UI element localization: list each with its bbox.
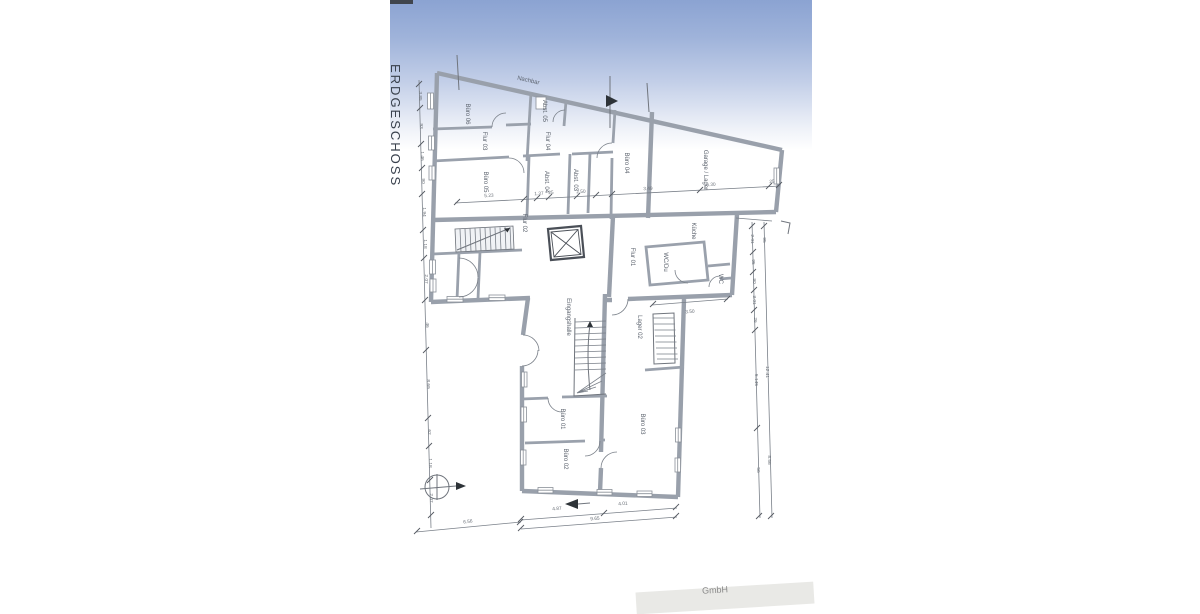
room-label-flur-02: Flur 02 [521, 214, 527, 233]
dim-label: 46 [424, 322, 430, 328]
dim-label: 2.01 [749, 234, 755, 244]
dim-label: 90 [420, 178, 426, 184]
room-label-buero-05: Büro 05 [482, 171, 488, 193]
staircase-straight [455, 226, 514, 252]
dim-label: 8.69 [425, 379, 431, 389]
room-label-abst-05: Abst. 05 [541, 100, 547, 123]
room-label-buero-06: Büro 06 [464, 103, 470, 125]
room-label-eingangshalle: Eingangshalle [565, 298, 571, 336]
room-label-kueche: Küche [690, 222, 696, 240]
dim-label: 56 [755, 467, 761, 473]
dim-label: 3.85 [417, 91, 423, 101]
dim-label: 95 [750, 259, 756, 265]
dim-label: 25 [548, 190, 554, 196]
dim-label: 9.65 [590, 516, 600, 523]
room-label-buero-03: Büro 03 [639, 413, 645, 435]
dim-label: 1.37 [534, 191, 544, 197]
dim-label: 25 [769, 179, 775, 185]
dim-label: 6.30 [706, 182, 716, 188]
room-label-flur-04: Flur 04 [544, 132, 550, 151]
dim-label: 2.07 [423, 274, 429, 284]
dim-label: 3.49 [643, 186, 653, 192]
dimension-chains [414, 80, 782, 534]
dim-label: 2.07 [428, 493, 434, 503]
dim-label: 2.50 [576, 189, 586, 195]
scanned-page: ERDGESCHOSS [0, 0, 1200, 600]
room-label-buero-01: Büro 01 [559, 408, 565, 430]
entrance-arrow-top [606, 76, 618, 128]
dim-label: 4.87 [552, 506, 562, 513]
room-label-wc: WC [717, 274, 723, 285]
dim-label: 8.56 [766, 455, 772, 465]
boundary-label-nachbar: Nachbar [516, 76, 539, 87]
dim-label: 62 [426, 429, 432, 435]
room-label-wc-du: WC/Du [662, 252, 668, 271]
dim-label: 90 [751, 278, 757, 284]
room-label-buero-02: Büro 02 [562, 448, 568, 470]
dim-label: 1.18 [422, 239, 428, 249]
room-label-abst-03: Abst. 03 [572, 169, 578, 192]
dim-label: 5.23 [484, 193, 494, 199]
dim-label: 5.145 [753, 374, 759, 386]
footer-company-fragment: GmbH [702, 584, 729, 596]
dim-label: 4.01 [618, 501, 628, 508]
north-arrow [420, 474, 466, 500]
dim-label: 12.41 [764, 366, 770, 378]
room-label-flur-03: Flur 03 [481, 132, 487, 151]
elevator [548, 226, 584, 260]
dim-label: 1.94 [421, 207, 427, 217]
dim-label: 1.46 [419, 151, 425, 161]
staircase-ladder [653, 313, 678, 364]
dim-label: 3.01 [751, 295, 757, 305]
boundary-marks [457, 55, 790, 234]
dim-label: 26 [752, 317, 758, 323]
dim-label: 3.50 [685, 309, 695, 316]
dim-label: 95 [761, 237, 767, 243]
entrance-arrow-bottom [565, 499, 590, 509]
dim-label: 1.18 [427, 458, 433, 468]
floor-plan-drawing: NachbarBüro 06Abst. 05Flur 03Flur 04Büro… [0, 0, 1200, 600]
dim-label: 93 [418, 123, 424, 129]
room-label-lager-02: Lager 02 [636, 315, 642, 339]
room-label-buero-04: Büro 04 [623, 152, 629, 174]
dim-label: 6.56 [463, 518, 473, 525]
room-label-flur-01: Flur 01 [629, 248, 635, 267]
